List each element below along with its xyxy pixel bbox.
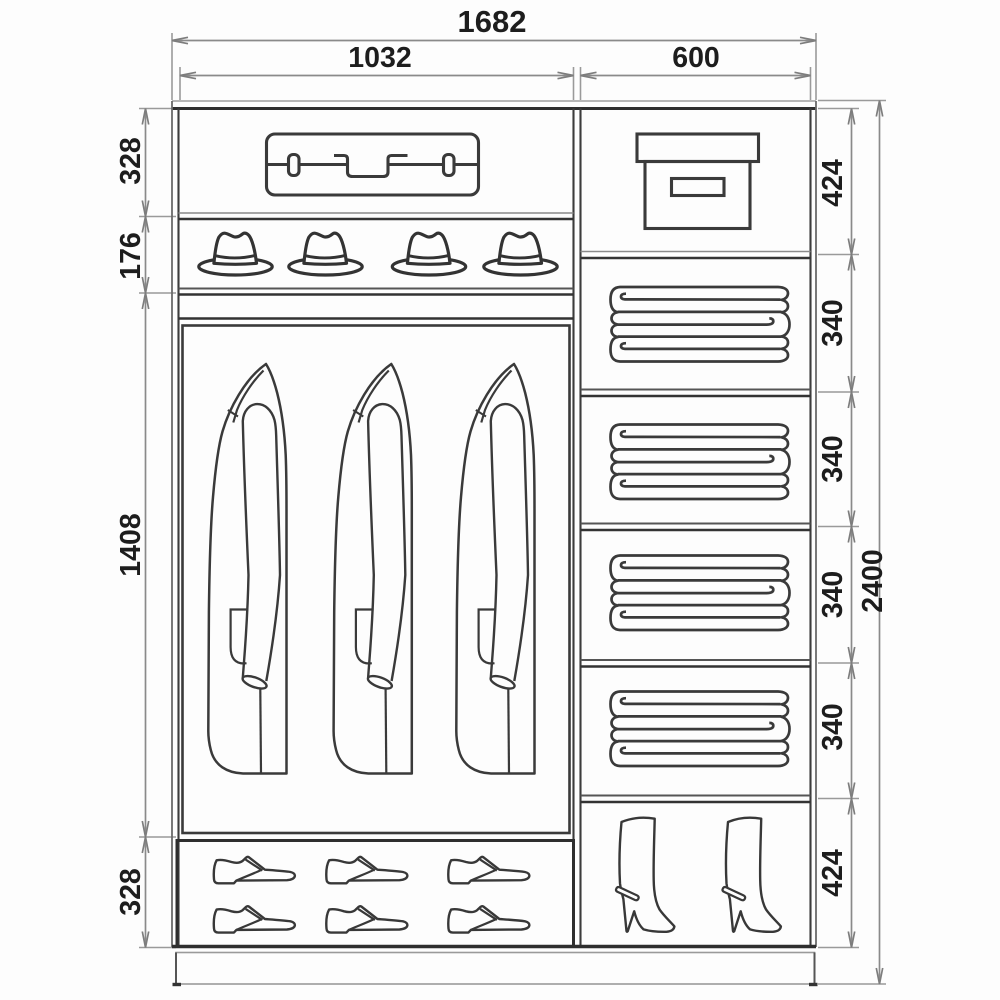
svg-text:1408: 1408	[115, 513, 147, 576]
svg-text:340: 340	[817, 299, 849, 347]
svg-text:340: 340	[817, 571, 849, 619]
svg-text:2400: 2400	[857, 549, 889, 612]
svg-text:424: 424	[817, 159, 849, 207]
svg-text:176: 176	[115, 232, 147, 280]
svg-text:1682: 1682	[458, 4, 527, 39]
svg-text:600: 600	[672, 42, 720, 74]
svg-text:328: 328	[115, 137, 147, 185]
svg-text:340: 340	[817, 435, 849, 483]
svg-text:1032: 1032	[348, 42, 411, 74]
svg-text:340: 340	[817, 703, 849, 751]
svg-text:328: 328	[115, 868, 147, 916]
svg-text:424: 424	[817, 849, 849, 897]
